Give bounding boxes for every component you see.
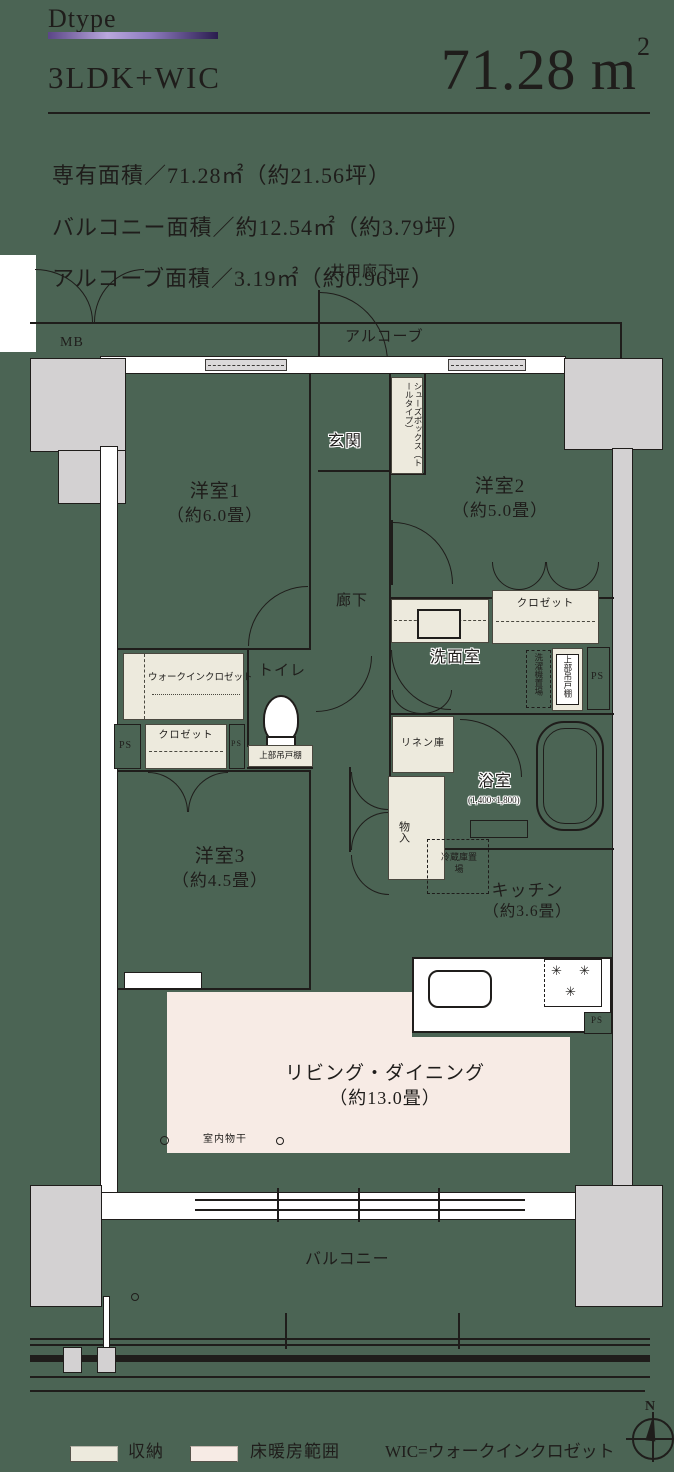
wall-entrance-east-upper [424, 374, 426, 475]
bedroom3-door-arc-left [148, 772, 188, 812]
washroom-upper-cabinet-label: 上部吊戸棚 [563, 655, 572, 698]
wall-bedroom3-north [118, 770, 311, 772]
header-rule [48, 112, 650, 114]
floorplan-page: Dtype 3LDK+WIC 71.28 m2 専有面積／71.28㎡（約21.… [0, 0, 674, 1472]
corridor-boundary-corner [620, 322, 622, 362]
area-unit: m [591, 37, 637, 102]
ps-kitchen-label: PS [591, 1015, 603, 1027]
west-exterior-wall [100, 446, 118, 1194]
ps-kitchen-box: PS [584, 1012, 612, 1034]
entrance-step-line [318, 470, 391, 472]
door-arc-bedroom1 [248, 586, 308, 646]
area-value: 71.28 [441, 37, 577, 102]
meter-box-label: MB [60, 334, 84, 352]
column-southeast [575, 1185, 663, 1307]
closet-bifold-arc-4 [573, 562, 599, 590]
door-arc-toilet [316, 656, 372, 712]
washer-space-label: 洗濯機置場 [534, 653, 543, 696]
door-arc-bedroom2 [393, 522, 453, 584]
linen-cabinet: リネン庫 [392, 716, 454, 773]
washbasin-counter [391, 599, 489, 643]
alcove-label: アルコーブ [345, 328, 424, 348]
unit-layout-label: 3LDK+WIC [48, 58, 221, 98]
legend-floor-heating-swatch [190, 1446, 238, 1462]
east-exterior-wall [612, 448, 633, 1194]
closet-bifold-arc-1 [492, 562, 519, 590]
fridge-space-label: 冷蔵庫置場 [437, 852, 481, 875]
bath-counter [470, 820, 528, 838]
balcony-rail-line-3 [30, 1376, 650, 1378]
entrance-label: 玄関 [328, 432, 362, 453]
closet3-dash-line [149, 751, 223, 752]
kitchen-counter: ✳ ✳ ✳ [412, 957, 612, 1033]
bedroom1-size: （約6.0畳） [140, 505, 290, 527]
hallway-label: 廊下 [336, 592, 368, 612]
kitchen-name: キッチン [450, 880, 605, 902]
bedroom2-name: 洋室2 [425, 475, 575, 500]
ps-washroom-box: PS [587, 647, 610, 710]
balcony-rail-line-2 [30, 1344, 650, 1346]
walk-in-closet-label: ウォークインクロゼット [148, 672, 253, 684]
stove-burner-icon: ✳ [579, 963, 590, 979]
walk-in-closet: ウォークインクロゼット [123, 653, 244, 720]
stove-box: ✳ ✳ ✳ [544, 959, 602, 1007]
ps-mid-label: PS [231, 739, 242, 749]
living-dining-size: （約13.0畳） [270, 1087, 500, 1110]
door-arc-storage-2 [351, 812, 388, 850]
legend-storage-swatch [70, 1446, 118, 1462]
bedroom1-north-window [205, 359, 287, 371]
balcony-rail-thick [30, 1355, 650, 1362]
common-corridor-label: 共用廊下 [330, 263, 394, 283]
closet-bifold-arc-2 [519, 562, 546, 590]
bathroom-size-label: (1,400×1,800) [468, 795, 520, 807]
bedroom3-closet: クロゼット [145, 724, 227, 769]
slider-tick-2 [358, 1188, 360, 1222]
ps-left-box: PS [114, 724, 141, 769]
adjacent-structure-block [0, 255, 36, 352]
washer-space-box: 洗濯機置場 [526, 650, 551, 708]
boundary-bottom-line [30, 1390, 645, 1392]
wall-bedroom1-south [118, 648, 311, 650]
column-northeast [564, 358, 663, 450]
door-arc-storage-1 [351, 772, 388, 810]
kitchen-label: キッチン （約3.6畳） [450, 880, 605, 922]
storage-small-label: 物入 [397, 821, 409, 843]
bathtub-inner [543, 728, 597, 824]
linen-cabinet-label: リネン庫 [393, 737, 453, 750]
bedroom3-closet-label: クロゼット [146, 729, 226, 742]
balcony-wall-stub [103, 1296, 110, 1348]
toilet-label: トイレ [258, 662, 306, 682]
closet-bifold-arc-3 [546, 562, 573, 590]
door-arc-hall-ldk [351, 855, 389, 895]
legend-wic-note: WIC=ウォークインクロゼット [385, 1441, 615, 1463]
legend-storage-label: 収納 [128, 1441, 164, 1463]
wall-hall-west-lower [349, 767, 351, 852]
unit-area-headline: 71.28 m2 [330, 30, 650, 107]
bedroom1-label: 洋室1 （約6.0畳） [140, 480, 290, 527]
bedroom2-closet: クロゼット [492, 590, 599, 644]
washroom-upper-cabinet: 上部吊戸棚 [552, 648, 583, 711]
spec-line-balcony-area: バルコニー面積／約12.54㎡（約3.79坪） [52, 214, 471, 243]
stove-burner-icon: ✳ [565, 984, 576, 1000]
balcony-label: バルコニー [305, 1250, 390, 1271]
living-dining-name: リビング・ダイニング [270, 1062, 500, 1087]
area-unit-sup: 2 [637, 32, 650, 61]
closet-dash-line [496, 621, 595, 622]
bedroom3-name: 洋室3 [145, 845, 295, 870]
spec-line-exclusive-area: 専有面積／71.28㎡（約21.56坪） [52, 162, 391, 191]
toilet-upper-cabinet-label: 上部吊戸棚 [249, 750, 312, 761]
drying-hook-right [276, 1137, 284, 1145]
type-underline-accent [48, 32, 218, 39]
bedroom3-label: 洋室3 （約4.5畳） [145, 845, 295, 892]
wall-toilet-west [247, 650, 249, 747]
bedroom1-name: 洋室1 [140, 480, 290, 505]
linen-bifold-arc-1 [392, 690, 422, 714]
slider-tick-1 [277, 1188, 279, 1222]
bedroom2-north-window [448, 359, 526, 371]
drying-hook-left [160, 1136, 169, 1145]
wall-bedroom1-east [309, 374, 311, 650]
bedroom3-size: （約4.5畳） [145, 870, 295, 892]
ps-left-label: PS [119, 739, 132, 752]
shoe-box: シューズボックス（トールタイプ） [391, 377, 423, 474]
kitchen-size: （約3.6畳） [450, 902, 605, 922]
rail-post-left [63, 1347, 82, 1373]
legend-floor-heating-label: 床暖房範囲 [250, 1441, 340, 1463]
linen-bifold-arc-2 [422, 690, 452, 714]
ld-sliding-window [195, 1199, 525, 1211]
kitchen-sink [428, 970, 492, 1008]
rail-post-right [97, 1347, 116, 1373]
door-arc-bathroom [460, 719, 522, 777]
indoor-drying-label: 室内物干 [203, 1133, 247, 1146]
bedroom2-size: （約5.0畳） [425, 500, 575, 522]
unit-type-label: Dtype [48, 2, 117, 36]
wall-bedroom3-east [309, 770, 311, 990]
wall-toilet-south [247, 767, 313, 769]
wic-dash-line [152, 694, 240, 695]
column-northwest [30, 358, 126, 452]
living-dining-label: リビング・ダイニング （約13.0畳） [270, 1062, 500, 1110]
balcony-drain [131, 1293, 139, 1301]
wic-divider-dash [144, 654, 145, 719]
bedroom2-closet-label: クロゼット [493, 597, 598, 611]
shoe-box-label: シューズボックス（トールタイプ） [394, 382, 422, 474]
toilet-upper-cabinet: 上部吊戸棚 [248, 745, 313, 767]
washbasin [417, 609, 461, 639]
bedroom2-label: 洋室2 （約5.0畳） [425, 475, 575, 522]
balcony-rail-line-1 [30, 1338, 650, 1340]
bedroom3-door-arc-right [188, 772, 228, 812]
stove-burner-icon: ✳ [551, 963, 562, 979]
column-southwest [30, 1185, 102, 1307]
slider-tick-3 [438, 1188, 440, 1222]
ps-washroom-label: PS [591, 670, 604, 683]
bedroom3-south-window [124, 972, 202, 989]
ps-mid-box: PS [229, 724, 245, 769]
